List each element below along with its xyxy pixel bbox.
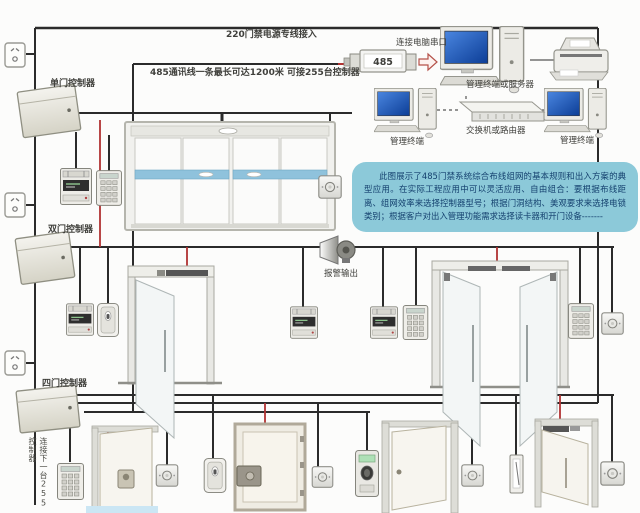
magnetic-lock-icon (502, 266, 530, 271)
sliding-door-icon (125, 122, 335, 230)
quad-door-controller (16, 385, 80, 433)
switch-label: 交换机或路由器 (466, 125, 526, 136)
keypad-reader-icon (403, 305, 428, 339)
fingerprint-reader-icon (356, 451, 379, 497)
card-reader-icon (204, 459, 226, 493)
server-label: 管理终端或服务器 (466, 79, 535, 90)
access-control-wiring-diagram: 485 220门禁电源专线接入 485通讯线一条最长可达1200米 可接255台… (0, 0, 640, 513)
exit-button-icon (312, 467, 333, 488)
single-door-controller (17, 84, 81, 138)
double-controller-label: 双门控制器 (48, 223, 94, 235)
keypad-reader-icon (58, 464, 84, 500)
alarm-output-label: 报警输出 (324, 268, 358, 279)
terminal-right-label: 管理终端 (560, 135, 595, 146)
single-controller-label: 单门控制器 (50, 77, 96, 89)
exit-button-icon (319, 176, 341, 198)
card-reader-display-icon (290, 307, 317, 339)
card-reader-display-icon (61, 169, 92, 205)
wood-door-open-1 (92, 426, 158, 513)
serial-port-label: 连接电脑串口 (396, 37, 447, 48)
terminal-left-label: 管理终端 (390, 136, 425, 147)
watermark-strip (86, 506, 158, 513)
magnetic-lock-icon (166, 270, 208, 276)
power-socket-icon (5, 351, 25, 375)
exit-button-icon (602, 313, 623, 334)
wood-door-closed (235, 424, 305, 510)
keypad-reader-icon (568, 304, 593, 339)
switch-icon (460, 102, 544, 121)
quad-controller-label: 四门控制器 (42, 377, 88, 389)
double-door-controller (15, 231, 75, 284)
door-sensor-icon (219, 128, 237, 134)
power-socket-icon (5, 193, 25, 217)
info-note-box: 此图展示了485门禁系统综合布线组网的基本规则和出入方案的典型应用。在实际工程应… (352, 162, 638, 232)
glass-stripe (135, 170, 229, 179)
door-contact-icon (510, 455, 523, 493)
magnetic-lock-icon (468, 266, 496, 271)
next-controller-label: 连接下一台255控制器 (27, 437, 49, 513)
power-line-label: 220门禁电源专线接入 (226, 28, 317, 40)
converter-485-label: 485 (373, 57, 393, 68)
exit-button-icon (462, 465, 483, 486)
card-reader-display-icon (66, 304, 93, 336)
exit-button-icon (156, 465, 177, 486)
diagram-canvas: 485 220门禁电源专线接入 485通讯线一条最长可达1200米 可接255台… (0, 0, 640, 513)
exit-button-icon (601, 462, 624, 485)
power-socket-icon (5, 43, 25, 67)
keypad-reader-icon (96, 171, 121, 206)
rs485-line-label: 485通讯线一条最长可达1200米 可接255台控制器 (150, 66, 361, 78)
card-reader-display-icon (370, 307, 397, 339)
card-reader-icon (98, 304, 119, 337)
